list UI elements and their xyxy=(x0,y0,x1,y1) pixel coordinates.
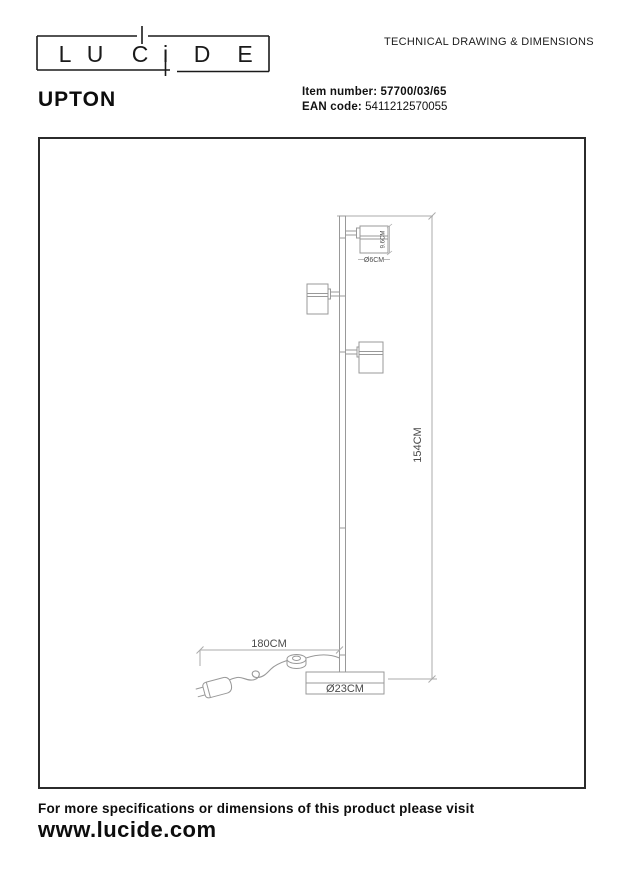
foot-switch-button xyxy=(293,656,301,660)
spotlight-right-arm xyxy=(346,350,358,354)
ean-row: EAN code: 5411212570055 xyxy=(302,100,447,115)
power-plug xyxy=(195,676,233,701)
cable-length-label: 180CM xyxy=(251,638,286,650)
plug-pin xyxy=(198,695,206,697)
logo-letter-l: L xyxy=(59,41,72,67)
footer-website: www.lucide.com xyxy=(38,817,217,843)
item-number-row: Item number: 57700/03/65 xyxy=(302,85,447,100)
base-diameter-label: Ø23CM xyxy=(326,683,364,695)
spotlight-left xyxy=(307,284,340,314)
technical-drawing-sheet: { "header": { "logo": { "brand": "LUCIDE… xyxy=(0,0,620,877)
product-name: UPTON xyxy=(38,88,116,112)
spot-height-label: 9.6CM xyxy=(381,231,387,249)
foot-switch xyxy=(287,655,306,669)
document-title: TECHNICAL DRAWING & DIMENSIONS xyxy=(384,36,584,48)
logo-letter-c: C xyxy=(132,41,149,67)
logo-letter-u: U xyxy=(87,41,104,67)
power-cable-segment xyxy=(306,655,340,658)
ean-value: 5411212570055 xyxy=(365,101,447,113)
spot-diameter-label: Ø6CM xyxy=(364,257,384,264)
spotlight-right-body xyxy=(359,342,383,373)
height-dimension-label: 154CM xyxy=(412,427,424,462)
lucide-logo: L U C i D E xyxy=(36,24,272,80)
item-info-block: Item number: 57700/03/65 EAN code: 54112… xyxy=(302,85,447,115)
spotlight-left-arm xyxy=(330,292,340,296)
item-number-label: Item number: xyxy=(302,86,377,98)
logo-letter-e: E xyxy=(237,41,252,67)
technical-drawing-canvas: 154CM 9.6CM Ø6CM xyxy=(38,137,586,789)
footer-note: For more specifications or dimensions of… xyxy=(38,801,474,816)
logo-letter-i: i xyxy=(163,41,168,67)
ean-label: EAN code: xyxy=(302,101,362,113)
power-cable xyxy=(229,661,288,681)
spotlight-left-body xyxy=(307,284,328,314)
logo-letter-d: D xyxy=(194,41,211,67)
spotlight-right xyxy=(346,342,384,373)
lamp-pole xyxy=(340,216,346,672)
plug-pin xyxy=(196,687,204,689)
item-number-value: 57700/03/65 xyxy=(380,86,446,98)
logo-box xyxy=(37,26,269,76)
